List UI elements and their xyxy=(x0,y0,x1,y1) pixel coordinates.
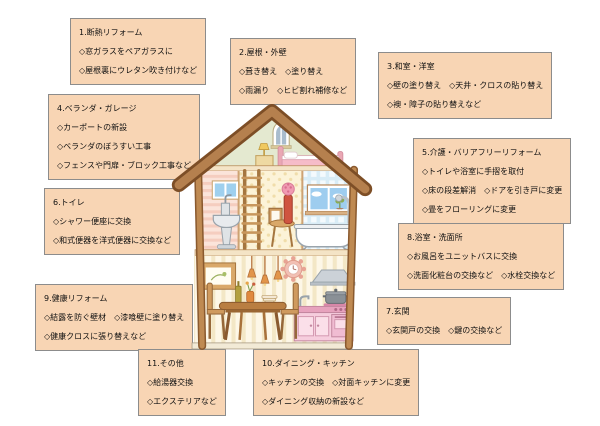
category-box-japanese-western-room: 3.和室・洋室 ◇壁の塗り替え ◇天井・クロスの貼り替え ◇襖・障子の貼り替えな… xyxy=(378,52,552,119)
second-floor xyxy=(196,171,355,250)
category-item: ◇トイレや浴室に手摺を取付 xyxy=(422,162,562,181)
category-title: 5.介護・バリアフリーリフォーム xyxy=(422,143,562,162)
category-box-other: 11.その他 ◇給湯器交換 ◇エクステリアなど xyxy=(138,349,226,416)
category-item: ◇和式便器を洋式便器に交換など xyxy=(53,231,171,250)
picture-frame-icon xyxy=(201,263,235,289)
attic-floor xyxy=(197,166,347,171)
category-item: ◇屋根裏にウレタン吹き付けなど xyxy=(79,61,197,80)
category-item: ◇エクステリアなど xyxy=(147,392,217,411)
category-item: ◇雨漏り ◇ヒビ割れ補修など xyxy=(239,81,347,100)
floor-divider xyxy=(195,250,349,256)
bathroom-window-icon xyxy=(305,185,352,215)
category-item: ◇シャワー便座に交換 xyxy=(53,212,171,231)
category-item: ◇玄関戸の交換 ◇鍵の交換など xyxy=(386,321,502,340)
category-box-insulation: 1.断熱リフォーム ◇窓ガラスをペアガラスに ◇屋根裏にウレタン吹き付けなど xyxy=(70,18,206,85)
category-title: 2.屋根・外壁 xyxy=(239,43,347,62)
category-title: 6.トイレ xyxy=(53,193,171,212)
house-icon xyxy=(168,104,376,352)
category-box-roof-exterior: 2.屋根・外壁 ◇葺き替え ◇塗り替え ◇雨漏り ◇ヒビ割れ補修など xyxy=(230,38,356,105)
category-item: ◇キッチンの交換 ◇対面キッチンに変更 xyxy=(262,373,410,392)
category-item: ◇結露を防ぐ壁材 ◇漆喰壁に塗り替え xyxy=(44,308,184,327)
category-title: 1.断熱リフォーム xyxy=(79,23,197,42)
category-box-dining-kitchen: 10.ダイニング・キッチン ◇キッチンの交換 ◇対面キッチンに変更 ◇ダイニング… xyxy=(253,349,419,416)
category-item: ◇床の段差解消 ◇ドアを引き戸に変更 xyxy=(422,181,562,200)
category-item: ◇葺き替え ◇塗り替え xyxy=(239,62,347,81)
category-item: ◇壁の塗り替え ◇天井・クロスの貼り替え xyxy=(387,76,543,95)
category-item: ◇畳をフローリングに変更 xyxy=(422,200,562,219)
category-box-entrance: 7.玄関 ◇玄関戸の交換 ◇鍵の交換など xyxy=(377,297,511,345)
category-title: 11.その他 xyxy=(147,354,217,373)
first-floor xyxy=(194,256,355,343)
category-item: ◇窓ガラスをペアガラスに xyxy=(79,42,197,61)
house-illustration xyxy=(168,104,376,352)
category-title: 8.浴室・洗面所 xyxy=(407,228,555,247)
category-item: ◇襖・障子の貼り替えなど xyxy=(387,95,543,114)
category-item: ◇洗面化粧台の交換など ◇水栓交換など xyxy=(407,266,555,285)
category-item: ◇給湯器交換 xyxy=(147,373,217,392)
category-box-barrier-free: 5.介護・バリアフリーリフォーム ◇トイレや浴室に手摺を取付 ◇床の段差解消 ◇… xyxy=(413,138,571,224)
renovation-diagram: 1.断熱リフォーム ◇窓ガラスをペアガラスに ◇屋根裏にウレタン吹き付けなど 2… xyxy=(0,0,600,426)
category-item: ◇お風呂をユニットバスに交換 xyxy=(407,247,555,266)
house-base xyxy=(192,343,352,349)
category-title: 7.玄関 xyxy=(386,302,502,321)
category-item: ◇ダイニング収納の新設など xyxy=(262,392,410,411)
category-title: 9.健康リフォーム xyxy=(44,289,184,308)
wall-clock-icon xyxy=(280,256,306,282)
category-title: 10.ダイニング・キッチン xyxy=(262,354,410,373)
category-title: 3.和室・洋室 xyxy=(387,57,543,76)
category-item: ◇健康クロスに張り替えなど xyxy=(44,327,184,346)
category-box-bathroom-washroom: 8.浴室・洗面所 ◇お風呂をユニットバスに交換 ◇洗面化粧台の交換など ◇水栓交… xyxy=(398,223,564,290)
bathtub-icon xyxy=(294,224,355,249)
category-box-toilet: 6.トイレ ◇シャワー便座に交換 ◇和式便器を洋式便器に交換など xyxy=(44,188,180,255)
